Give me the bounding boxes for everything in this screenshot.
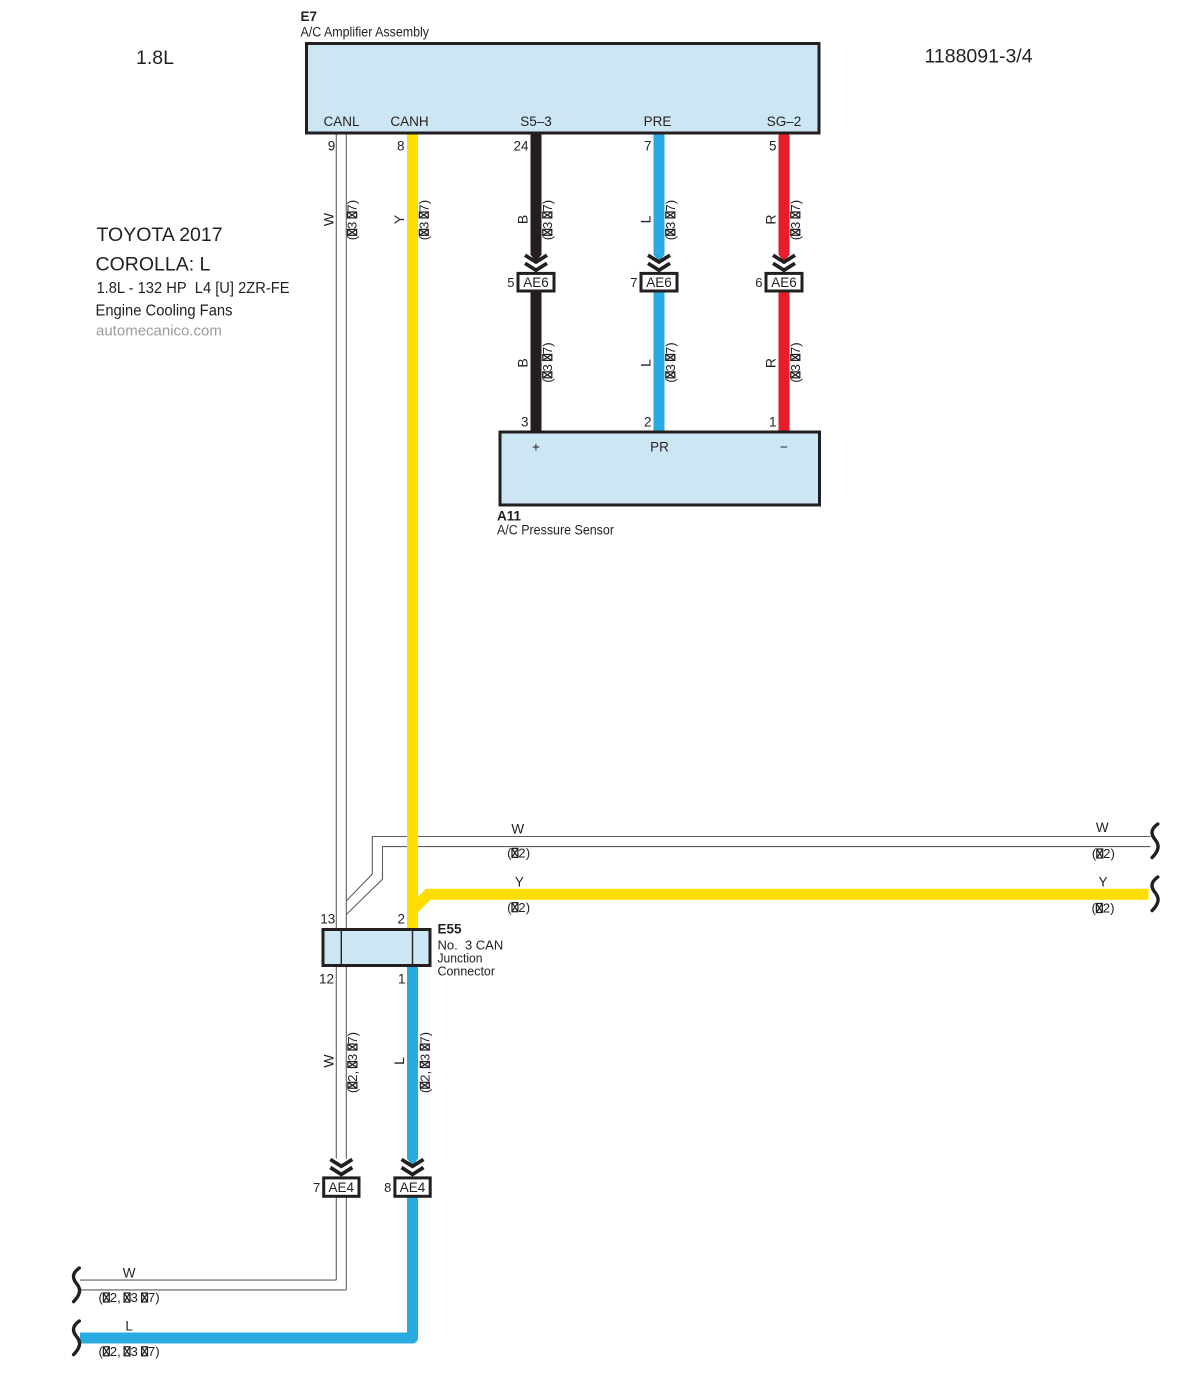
svg-text:AE6: AE6: [646, 275, 672, 290]
svg-text:): ): [155, 1290, 159, 1305]
svg-text:7: 7: [148, 1290, 155, 1305]
svg-text:(: (: [417, 1088, 432, 1093]
svg-text:B: B: [515, 215, 531, 224]
svg-text:8: 8: [397, 139, 405, 154]
svg-text:3: 3: [540, 364, 555, 371]
svg-text:7: 7: [148, 1344, 155, 1359]
svg-text:(: (: [99, 1344, 104, 1359]
svg-text:): ): [788, 200, 803, 204]
svg-text:3: 3: [131, 1290, 138, 1305]
svg-text:TOYOTA 2017: TOYOTA 2017: [97, 224, 223, 246]
svg-text:,: ,: [117, 1344, 121, 1359]
svg-text:): ): [526, 846, 530, 861]
svg-text:Y: Y: [391, 214, 407, 224]
svg-text:(: (: [663, 378, 678, 383]
svg-text:(: (: [663, 235, 678, 240]
svg-text:Connector: Connector: [438, 964, 496, 979]
svg-text:3: 3: [540, 222, 555, 229]
svg-text:A11: A11: [497, 509, 522, 524]
svg-text:3: 3: [417, 1054, 432, 1061]
svg-text:): ): [663, 200, 678, 204]
svg-text:3: 3: [131, 1344, 138, 1359]
svg-text:R: R: [763, 358, 779, 368]
svg-text:Y: Y: [515, 875, 524, 890]
svg-text:7: 7: [644, 139, 652, 154]
svg-text:R: R: [763, 214, 779, 224]
svg-text:(: (: [1092, 901, 1097, 916]
svg-text:7: 7: [663, 204, 678, 211]
svg-text:PRE: PRE: [644, 114, 672, 129]
svg-text:5: 5: [507, 275, 514, 290]
svg-text:): ): [417, 1032, 432, 1036]
svg-text:2: 2: [1103, 846, 1110, 861]
svg-text:W: W: [320, 212, 336, 226]
svg-text:9: 9: [328, 139, 336, 154]
svg-text:2: 2: [518, 900, 525, 915]
svg-text:1.8L: 1.8L: [136, 47, 174, 69]
svg-text:3: 3: [788, 222, 803, 229]
svg-text:AE4: AE4: [400, 1180, 426, 1195]
svg-text:): ): [788, 342, 803, 346]
svg-text:24: 24: [513, 139, 529, 154]
svg-text:8: 8: [384, 1180, 391, 1195]
svg-text:AE4: AE4: [329, 1180, 355, 1195]
svg-text:): ): [526, 900, 530, 915]
svg-text:Y: Y: [1098, 875, 1107, 890]
svg-text:7: 7: [345, 204, 360, 211]
svg-text:SG–2: SG–2: [767, 114, 802, 129]
svg-text:+: +: [532, 440, 540, 455]
svg-text:(: (: [345, 1088, 360, 1093]
svg-text:(: (: [788, 378, 803, 383]
svg-text:13: 13: [320, 912, 335, 927]
svg-text:W: W: [320, 1054, 336, 1068]
svg-text:7: 7: [540, 204, 555, 211]
svg-text:PR: PR: [650, 440, 669, 455]
svg-text:7: 7: [313, 1180, 320, 1195]
svg-text:1188091-3/4: 1188091-3/4: [925, 46, 1033, 68]
svg-text:): ): [1111, 846, 1115, 861]
svg-text:L: L: [638, 215, 654, 223]
svg-text:): ): [345, 1032, 360, 1036]
svg-text:(: (: [507, 846, 512, 861]
svg-text:(: (: [788, 235, 803, 240]
svg-text:): ): [1110, 901, 1114, 916]
svg-text:7: 7: [416, 204, 431, 211]
svg-text:CANH: CANH: [390, 114, 428, 129]
svg-text:1.8L - 132 HP L4 [U] 2ZR-FE: 1.8L - 132 HP L4 [U] 2ZR-FE: [97, 280, 290, 297]
svg-text:2: 2: [644, 415, 652, 430]
svg-text:2: 2: [110, 1344, 117, 1359]
svg-text:A/C Pressure Sensor: A/C Pressure Sensor: [497, 523, 614, 538]
svg-text:Engine Cooling Fans: Engine Cooling Fans: [96, 303, 233, 320]
svg-text:3: 3: [345, 1054, 360, 1061]
svg-text:−: −: [780, 440, 788, 455]
svg-text:3: 3: [788, 364, 803, 371]
svg-text:3: 3: [416, 222, 431, 229]
svg-text:L: L: [125, 1318, 133, 1333]
svg-text:7: 7: [345, 1036, 360, 1043]
svg-text:(: (: [540, 235, 555, 240]
svg-text:AE6: AE6: [523, 275, 549, 290]
svg-text:3: 3: [663, 364, 678, 371]
svg-text:B: B: [515, 358, 531, 367]
svg-text:): ): [540, 342, 555, 346]
svg-text:3: 3: [663, 222, 678, 229]
svg-text:1: 1: [769, 415, 777, 430]
svg-text:2: 2: [397, 912, 405, 927]
svg-text:W: W: [511, 822, 524, 837]
svg-text:12: 12: [319, 972, 334, 987]
svg-text:7: 7: [788, 204, 803, 211]
svg-text:(: (: [345, 235, 360, 240]
svg-text:E55: E55: [438, 922, 463, 937]
svg-text:CANL: CANL: [323, 114, 360, 129]
svg-text:7: 7: [788, 347, 803, 354]
svg-text:L: L: [638, 359, 654, 367]
svg-text:): ): [663, 342, 678, 346]
svg-text:S5–3: S5–3: [520, 114, 552, 129]
svg-text:2: 2: [417, 1075, 432, 1082]
svg-text:2: 2: [345, 1075, 360, 1082]
svg-text:W: W: [123, 1265, 136, 1280]
svg-text:3: 3: [345, 222, 360, 229]
svg-text:(: (: [99, 1290, 104, 1305]
svg-text:,: ,: [117, 1290, 121, 1305]
svg-text:AE6: AE6: [771, 275, 797, 290]
svg-text:(: (: [540, 378, 555, 383]
svg-text:2: 2: [518, 846, 525, 861]
svg-text:COROLLA: L: COROLLA: L: [96, 254, 211, 276]
svg-text:(: (: [416, 235, 431, 240]
svg-text:7: 7: [663, 347, 678, 354]
svg-text:): ): [345, 200, 360, 204]
svg-text:2: 2: [1103, 901, 1110, 916]
svg-text:A/C Amplifier Assembly: A/C Amplifier Assembly: [301, 25, 430, 40]
svg-text:3: 3: [521, 415, 529, 430]
svg-text:1: 1: [398, 972, 406, 987]
svg-text:): ): [155, 1344, 159, 1359]
svg-text:7: 7: [417, 1036, 432, 1043]
svg-text:W: W: [1096, 820, 1109, 835]
svg-text:): ): [540, 200, 555, 204]
svg-text:7: 7: [540, 347, 555, 354]
svg-text:L: L: [391, 1057, 407, 1065]
svg-text:6: 6: [755, 275, 762, 290]
svg-text:(: (: [507, 900, 512, 915]
svg-text:2: 2: [110, 1290, 117, 1305]
svg-text:,: ,: [417, 1071, 432, 1075]
svg-text:(: (: [1092, 846, 1097, 861]
svg-text:5: 5: [769, 139, 777, 154]
svg-text:,: ,: [345, 1071, 360, 1075]
svg-text:E7: E7: [301, 9, 318, 24]
svg-text:): ): [416, 200, 431, 204]
svg-text:automecanico.com: automecanico.com: [96, 323, 222, 340]
svg-text:7: 7: [630, 275, 637, 290]
